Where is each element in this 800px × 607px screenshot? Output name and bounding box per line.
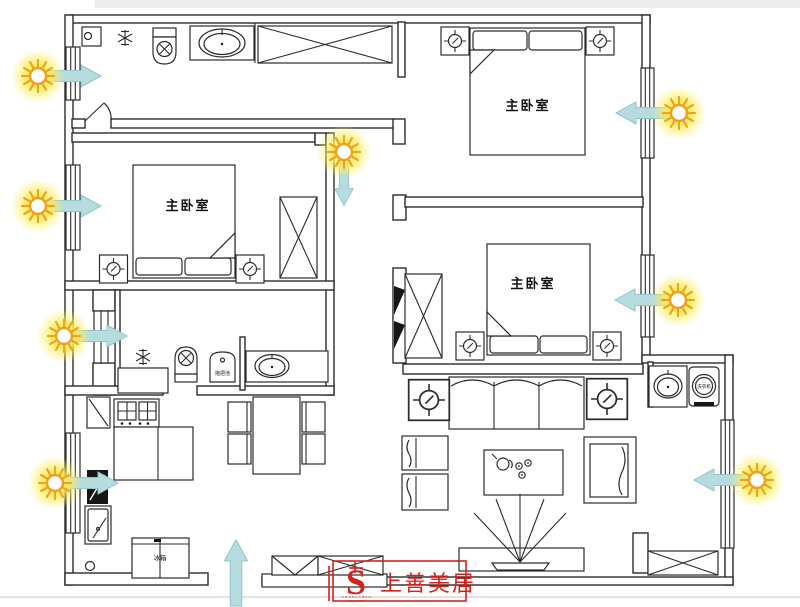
fridge: 冰箱: [132, 538, 189, 578]
coffee-table: [484, 450, 563, 495]
snowflake-icon: [118, 30, 132, 46]
sun-arrow-west-1: [11, 49, 101, 103]
toilet-icon: [153, 28, 176, 64]
shoe-cabinet-base: [262, 574, 387, 587]
sink-icon: [190, 26, 254, 60]
door-swing: [85, 103, 111, 121]
sink-icon: [649, 366, 687, 407]
dining-chair: [302, 434, 325, 464]
floor-plan-page: 主卧室 主卧室 主卧室: [0, 0, 800, 607]
sun-arrow-hallway: [317, 125, 371, 206]
sink-icon: [246, 351, 328, 382]
tv-unit: [459, 494, 584, 571]
sun-icon: [730, 453, 784, 507]
stove: [114, 399, 159, 427]
mop-sink: 拖把池: [210, 352, 235, 382]
pillow: [529, 31, 582, 50]
room-label: 主卧室: [510, 276, 555, 291]
pillow: [185, 258, 231, 275]
counter: [114, 427, 193, 480]
wardrobe: [258, 26, 392, 63]
sofa: [449, 377, 584, 429]
counter: [118, 368, 168, 393]
dining-chair: [228, 402, 251, 432]
toilet-icon: [175, 347, 197, 382]
room-label: 主卧室: [165, 198, 210, 213]
bedroom-top-right: 主卧室: [441, 27, 614, 155]
armchair: [402, 436, 448, 470]
nightstand-lamp-icon: [236, 255, 264, 283]
floor-plan-svg: 主卧室 主卧室 主卧室: [0, 0, 800, 607]
nightstand-lamp-icon: [100, 255, 128, 283]
sun-arrow-west-2: [11, 179, 101, 233]
armchair: [402, 474, 448, 510]
room-label: 主卧室: [505, 98, 550, 113]
pillow: [473, 31, 527, 50]
closet: [648, 551, 718, 575]
sun-icon: [11, 179, 65, 233]
bedroom-left: 主卧室: [100, 165, 318, 283]
sun-arrow-east-1: [616, 86, 706, 140]
nightstand-lamp-icon: [456, 332, 484, 360]
pillow: [540, 336, 587, 353]
nightstand-lamp-icon: [586, 27, 614, 55]
lounge-chair: [584, 437, 636, 503]
sun-arrow-east-3: [694, 453, 784, 507]
wardrobe: [405, 274, 442, 358]
mop-sink-label: 拖把池: [215, 370, 230, 377]
sun-icon: [651, 273, 705, 327]
wardrobe: [280, 197, 317, 278]
sun-icon: [652, 86, 706, 140]
page-bottom-line: [0, 596, 800, 598]
nightstand-lamp-icon: [593, 332, 621, 360]
kitchen-sink: [85, 506, 111, 544]
washing-machine: 洗衣机: [689, 367, 719, 406]
bedroom-mid-right: 主卧室: [394, 244, 621, 360]
snowflake-icon: [136, 349, 150, 365]
dining-area: [228, 397, 325, 474]
sun-icon: [317, 125, 371, 179]
dining-table: [253, 397, 300, 474]
nightstand-lamp-icon: [441, 27, 469, 55]
utility-bathroom: 洗衣机: [649, 366, 719, 407]
fridge-label: 冰箱: [154, 553, 168, 562]
sun-icon: [11, 49, 65, 103]
corner-cabinet: [87, 397, 110, 428]
dining-chair: [228, 434, 251, 464]
logo-subtext-2: MEIJU: [350, 599, 365, 603]
tv-icon: [492, 563, 549, 570]
logo-brand-text: 上善美居: [380, 571, 476, 596]
dining-chair: [302, 402, 325, 432]
sun-arrow-east-2: [615, 273, 705, 327]
sun-icon: [37, 309, 91, 363]
washing-machine-label: 洗衣机: [697, 383, 711, 390]
side-table-lamp-icon: [409, 380, 450, 421]
floor-drain: [86, 562, 95, 571]
shoe-cabinet: [272, 556, 383, 575]
page-top-strip: [95, 0, 800, 8]
pillow: [136, 258, 182, 275]
side-table-lamp-icon: [587, 379, 628, 420]
bathroom-top: [82, 26, 392, 121]
pillow: [490, 336, 538, 353]
sun-icon: [28, 456, 82, 510]
